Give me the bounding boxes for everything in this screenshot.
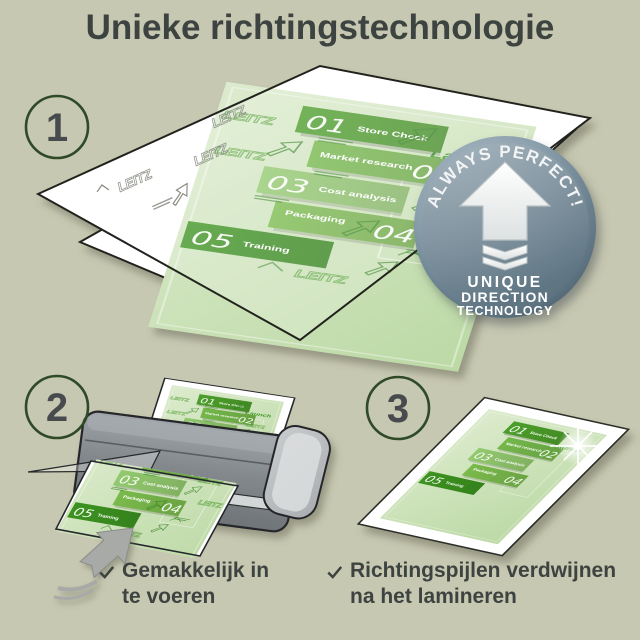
step-2-number: 2 (46, 386, 68, 430)
always-perfect-badge: ALWAYS PERFECT! UNIQUE DIRECTION TECHNOL… (414, 136, 596, 318)
checklist-item-easy-feed: Gemakkelijk in te voeren (98, 558, 269, 610)
step-3-number: 3 (387, 387, 409, 431)
checklist-item-arrows-disappear: Richtingspijlen verdwijnen na het lamine… (326, 558, 616, 610)
badge-line-direction: DIRECTION (461, 289, 549, 305)
step-3-marker: 3 (367, 377, 429, 439)
illustration-canvas: Launch 01 Store Check Market research 02 (0, 0, 640, 640)
checklist-text-line: Gemakkelijk in (122, 558, 269, 584)
badge-line-technology: TECHNOLOGY (457, 304, 553, 318)
step-1-number: 1 (46, 106, 68, 150)
checklist-text-line: na het lamineren (350, 584, 616, 610)
step-2-marker: 2 (26, 376, 88, 438)
checkmark-icon (98, 563, 116, 581)
checklist-text-line: Richtingspijlen verdwijnen (350, 558, 616, 584)
checkmark-icon (326, 563, 344, 581)
step-1-marker: 1 (26, 96, 88, 158)
checklist-text-line: te voeren (122, 584, 269, 610)
